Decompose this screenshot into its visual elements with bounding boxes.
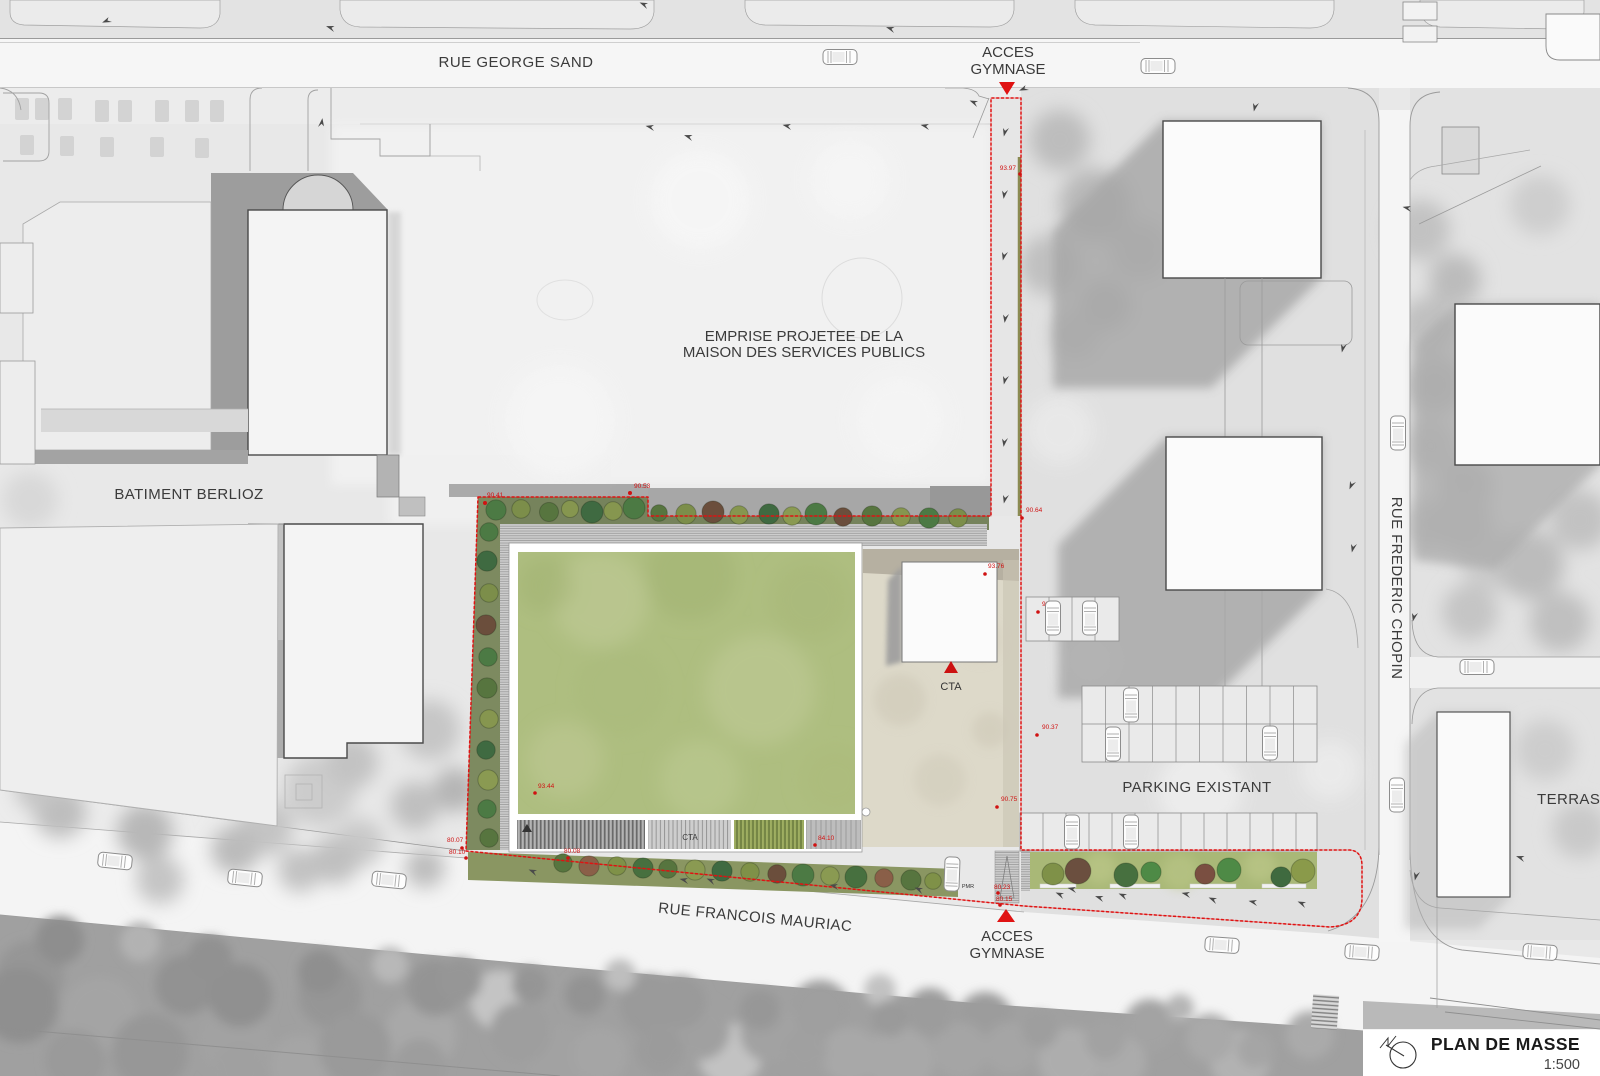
svg-text:RUE FREDERIC CHOPIN: RUE FREDERIC CHOPIN (1388, 497, 1405, 680)
svg-text:1:500: 1:500 (1544, 1057, 1580, 1073)
svg-text:ACCES: ACCES (982, 44, 1034, 61)
svg-text:90.41: 90.41 (487, 492, 504, 499)
svg-text:80.07: 80.07 (447, 837, 464, 844)
svg-text:CTA: CTA (682, 833, 698, 842)
svg-text:MAISON DES SERVICES PUBLICS: MAISON DES SERVICES PUBLICS (683, 344, 925, 361)
svg-text:GYMNASE: GYMNASE (969, 945, 1044, 962)
svg-text:BATIMENT BERLIOZ: BATIMENT BERLIOZ (114, 486, 263, 503)
svg-text:RUE GEORGE SAND: RUE GEORGE SAND (438, 54, 593, 71)
svg-text:90.64: 90.64 (1026, 507, 1043, 514)
svg-text:93.76: 93.76 (988, 563, 1005, 570)
svg-text:90.37: 90.37 (1042, 724, 1059, 731)
svg-text:80.15: 80.15 (996, 896, 1013, 903)
svg-text:CTA: CTA (940, 681, 962, 693)
svg-text:84.10: 84.10 (818, 835, 835, 842)
svg-text:GYMNASE: GYMNASE (970, 61, 1045, 78)
svg-text:PLAN DE MASSE: PLAN DE MASSE (1431, 1034, 1580, 1054)
svg-text:ACCES: ACCES (981, 928, 1033, 945)
svg-text:PARKING EXISTANT: PARKING EXISTANT (1122, 779, 1271, 796)
svg-text:80.23: 80.23 (994, 884, 1011, 891)
svg-text:90.75: 90.75 (1001, 796, 1018, 803)
svg-text:TERRAS: TERRAS (1537, 791, 1600, 808)
svg-text:93.97: 93.97 (1000, 165, 1017, 172)
svg-text:PMR: PMR (962, 884, 974, 890)
svg-text:EMPRISE PROJETEE DE LA: EMPRISE PROJETEE DE LA (705, 328, 903, 345)
svg-text:93.44: 93.44 (538, 783, 555, 790)
svg-text:90.53: 90.53 (634, 483, 651, 490)
svg-text:80.10: 80.10 (449, 849, 466, 856)
svg-text:80.08: 80.08 (564, 848, 581, 855)
